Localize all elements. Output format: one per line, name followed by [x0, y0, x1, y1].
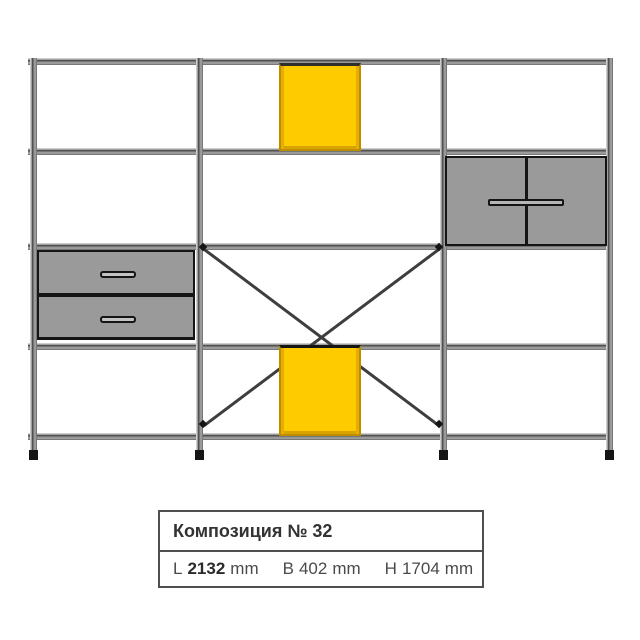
composition-title: Композиция № 32	[173, 521, 332, 542]
drawer-lower	[37, 295, 195, 340]
drawer-upper	[37, 250, 195, 295]
drawer-module	[37, 250, 195, 340]
dimension-length-unit: mm	[230, 559, 258, 579]
two-door-cabinet	[445, 156, 607, 246]
shelving-unit-diagram	[28, 58, 613, 460]
dimension-depth-unit: mm	[332, 559, 360, 579]
spec-card: Композиция № 32 L 2132 mm B 402 mm H 170…	[158, 510, 484, 588]
dimension-length: L 2132 mm	[173, 559, 259, 579]
frame-post-4	[606, 58, 613, 450]
spec-title-row: Композиция № 32	[160, 512, 482, 552]
dimension-length-value: 2132	[187, 559, 225, 579]
dimension-depth-value: 402	[299, 559, 327, 579]
dimension-height: H 1704 mm	[385, 559, 473, 579]
spec-dims-row: L 2132 mm B 402 mm H 1704 mm	[160, 552, 482, 586]
dimension-height-value: 1704	[402, 559, 440, 579]
frame-post-2	[196, 58, 203, 450]
cabinet-handle	[488, 199, 564, 206]
drawer-handle	[100, 316, 136, 323]
frame-post-3	[440, 58, 447, 450]
yellow-box-lower	[279, 345, 361, 436]
dimension-length-prefix: L	[173, 559, 182, 579]
dimension-height-unit: mm	[445, 559, 473, 579]
drawer-handle	[100, 271, 136, 278]
yellow-box-upper	[279, 63, 361, 151]
post-foot	[29, 450, 38, 460]
post-foot	[195, 450, 204, 460]
post-foot	[439, 450, 448, 460]
dimension-depth-prefix: B	[283, 559, 294, 579]
post-foot	[605, 450, 614, 460]
frame-post-1	[30, 58, 37, 450]
dimension-depth: B 402 mm	[283, 559, 361, 579]
dimension-height-prefix: H	[385, 559, 397, 579]
